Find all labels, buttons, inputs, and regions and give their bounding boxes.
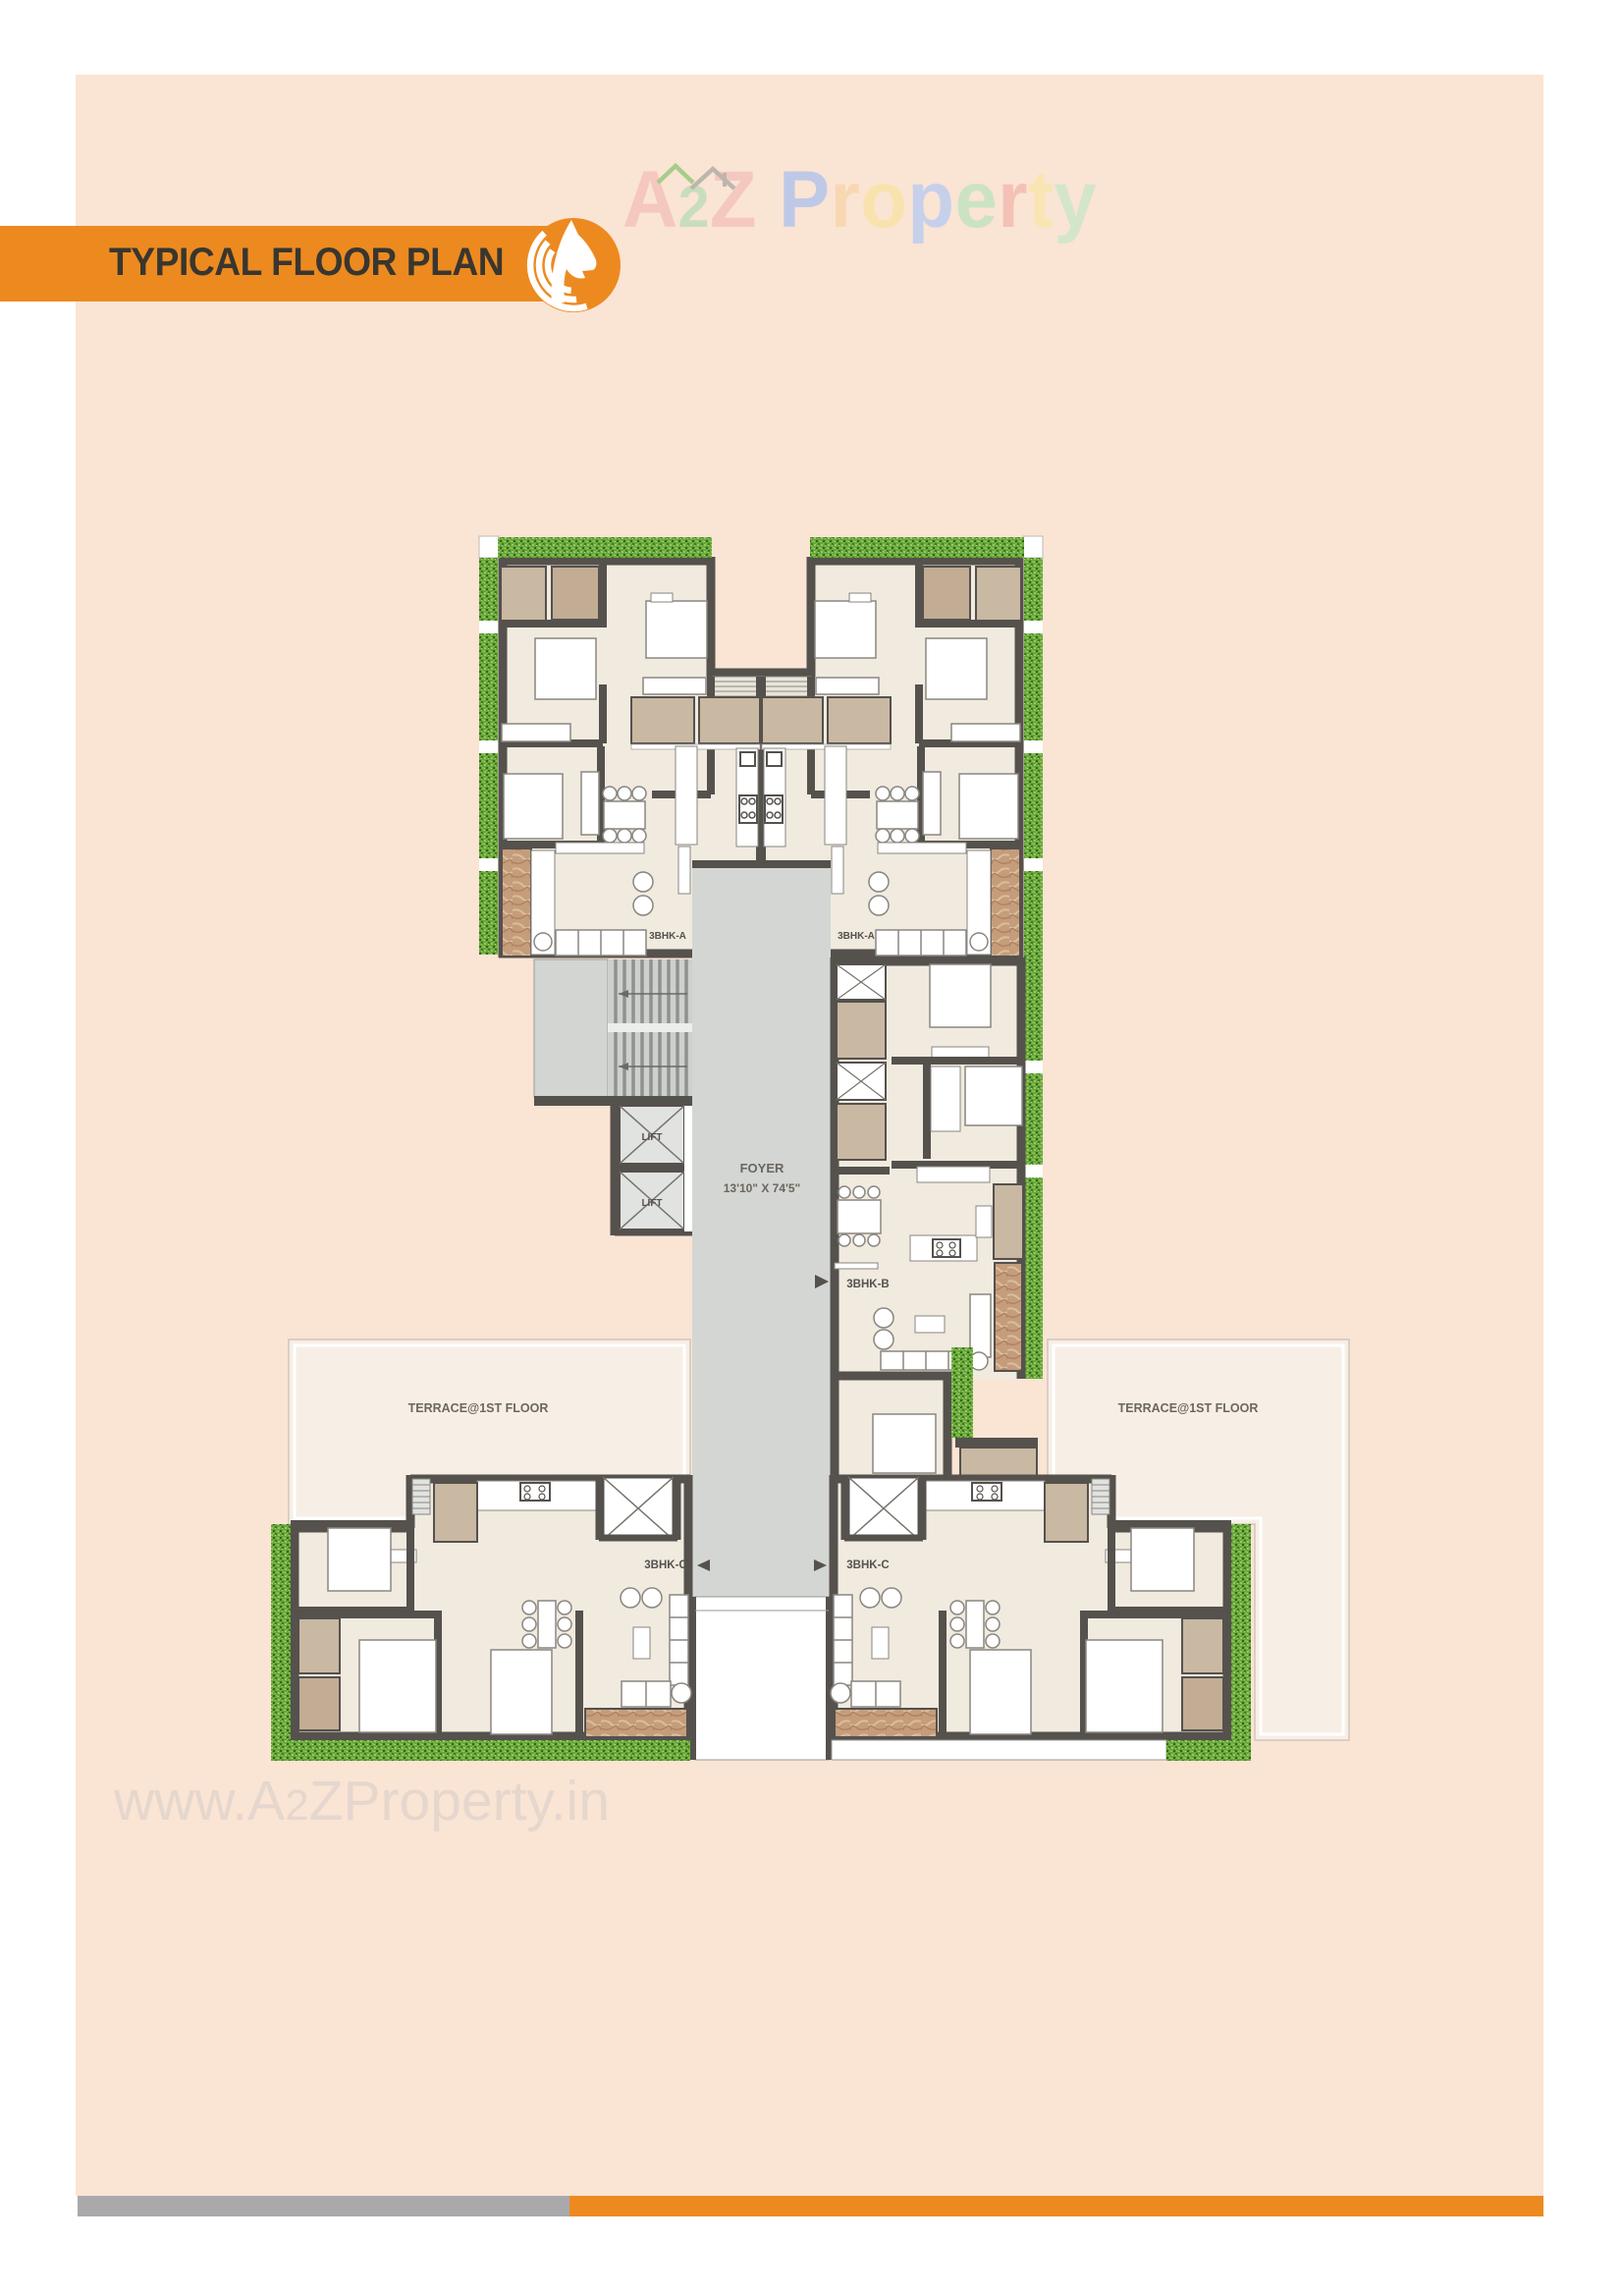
svg-text:TERRACE@1ST FLOOR: TERRACE@1ST FLOOR [1118, 1401, 1259, 1415]
svg-text:3BHK-B: 3BHK-B [846, 1279, 889, 1290]
svg-text:TERRACE@1ST FLOOR: TERRACE@1ST FLOOR [408, 1401, 549, 1415]
svg-text:3BHK-C: 3BHK-C [644, 1559, 686, 1571]
svg-text:LIFT: LIFT [641, 1198, 662, 1209]
svg-text:3BHK-C: 3BHK-C [846, 1559, 889, 1571]
svg-text:3BHK-A: 3BHK-A [838, 931, 875, 942]
svg-text:13'10" X 74'5": 13'10" X 74'5" [724, 1181, 800, 1195]
svg-text:FOYER: FOYER [740, 1161, 784, 1175]
svg-text:3BHK-A: 3BHK-A [649, 931, 686, 942]
svg-text:LIFT: LIFT [641, 1132, 662, 1143]
